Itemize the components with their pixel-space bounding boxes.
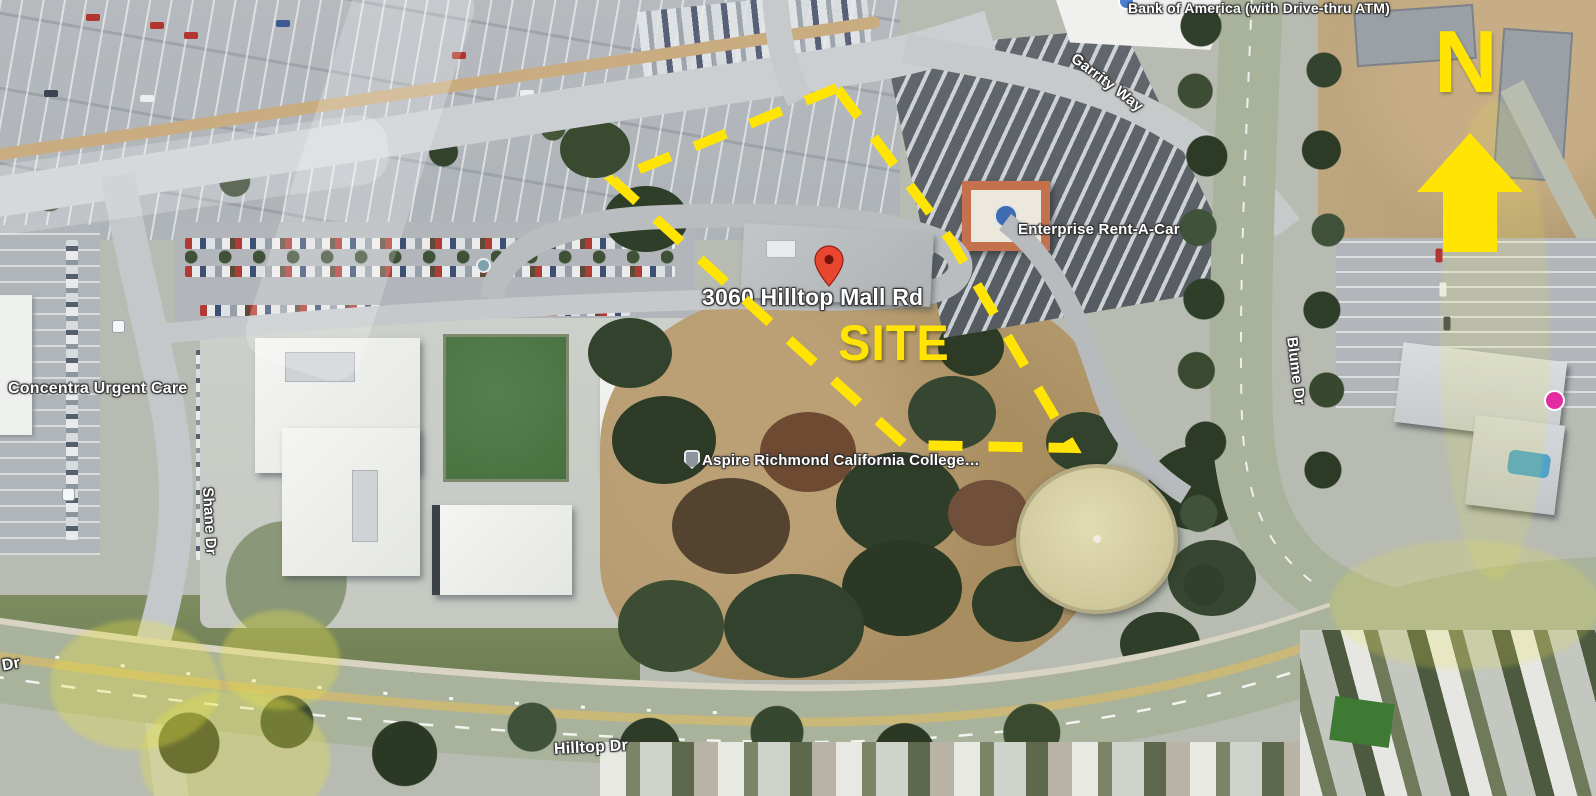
site-boundary-overlay [0,0,1596,796]
north-arrow-icon [1417,133,1523,252]
north-letter: N [1434,18,1498,106]
site-annotation-label: SITE [838,314,950,372]
red-map-pin-icon [815,246,843,286]
aerial-map-canvas: Bank of America (with Drive-thru ATM) Ga… [0,0,1596,796]
site-boundary-dashed-polygon [613,88,1073,448]
